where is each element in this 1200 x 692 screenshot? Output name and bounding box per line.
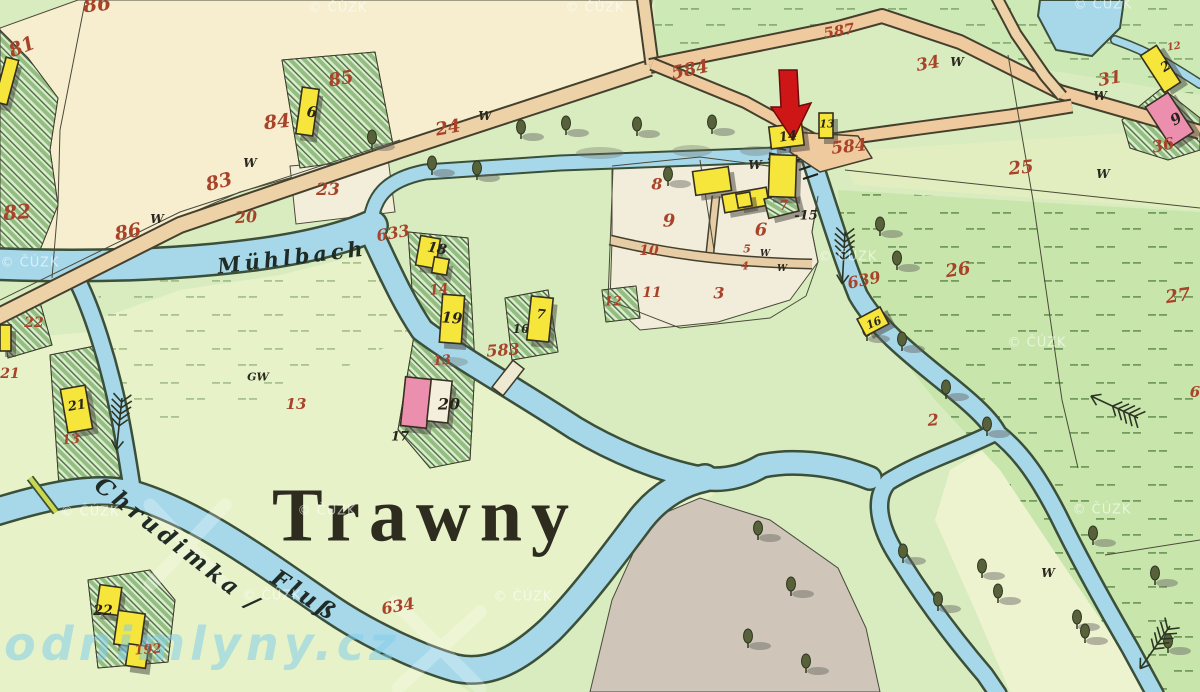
building [768, 155, 802, 204]
building [439, 294, 470, 350]
cadastral-map-viewport: Trawny Mühlbach Chrudimka / Fluß vodniml… [0, 0, 1200, 692]
map-canvas [0, 0, 1200, 692]
building [526, 296, 558, 349]
